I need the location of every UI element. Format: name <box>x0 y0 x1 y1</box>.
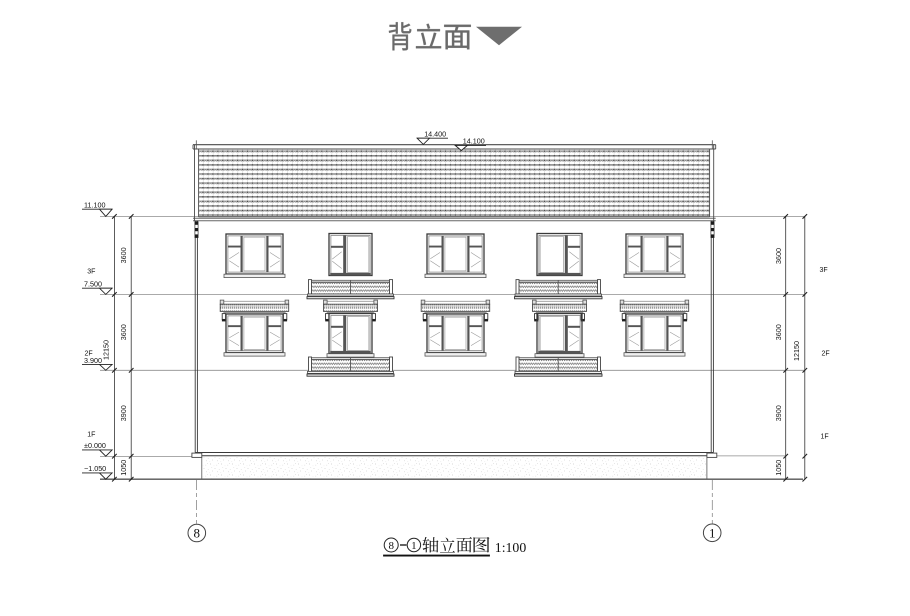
svg-text:3F: 3F <box>87 269 95 276</box>
svg-text:2F: 2F <box>822 351 830 358</box>
svg-text:12150: 12150 <box>792 341 801 361</box>
svg-text:1: 1 <box>411 540 417 552</box>
svg-text:3F: 3F <box>820 267 828 274</box>
svg-text:8: 8 <box>388 540 394 552</box>
svg-text:1F: 1F <box>821 434 829 441</box>
svg-text:1F: 1F <box>87 431 95 438</box>
svg-text:1:100: 1:100 <box>495 540 527 555</box>
svg-text:14.400: 14.400 <box>424 130 446 139</box>
svg-text:7.500: 7.500 <box>84 279 102 288</box>
svg-text:3600: 3600 <box>119 247 128 263</box>
svg-text:8: 8 <box>194 526 201 541</box>
svg-text:3600: 3600 <box>119 324 128 340</box>
svg-text:−1.050: −1.050 <box>84 464 106 473</box>
svg-text:11.100: 11.100 <box>84 200 105 209</box>
svg-text:3900: 3900 <box>119 405 128 421</box>
svg-text:3600: 3600 <box>774 324 783 340</box>
svg-text:±0.000: ±0.000 <box>84 441 106 450</box>
svg-text:3.900: 3.900 <box>84 356 102 365</box>
svg-text:3900: 3900 <box>774 405 783 421</box>
svg-text:1050: 1050 <box>774 460 783 476</box>
svg-text:14.100: 14.100 <box>463 136 485 145</box>
svg-text:1: 1 <box>709 525 716 540</box>
svg-text:1050: 1050 <box>119 460 128 476</box>
svg-text:12150: 12150 <box>101 340 110 360</box>
svg-text:3600: 3600 <box>774 248 783 264</box>
